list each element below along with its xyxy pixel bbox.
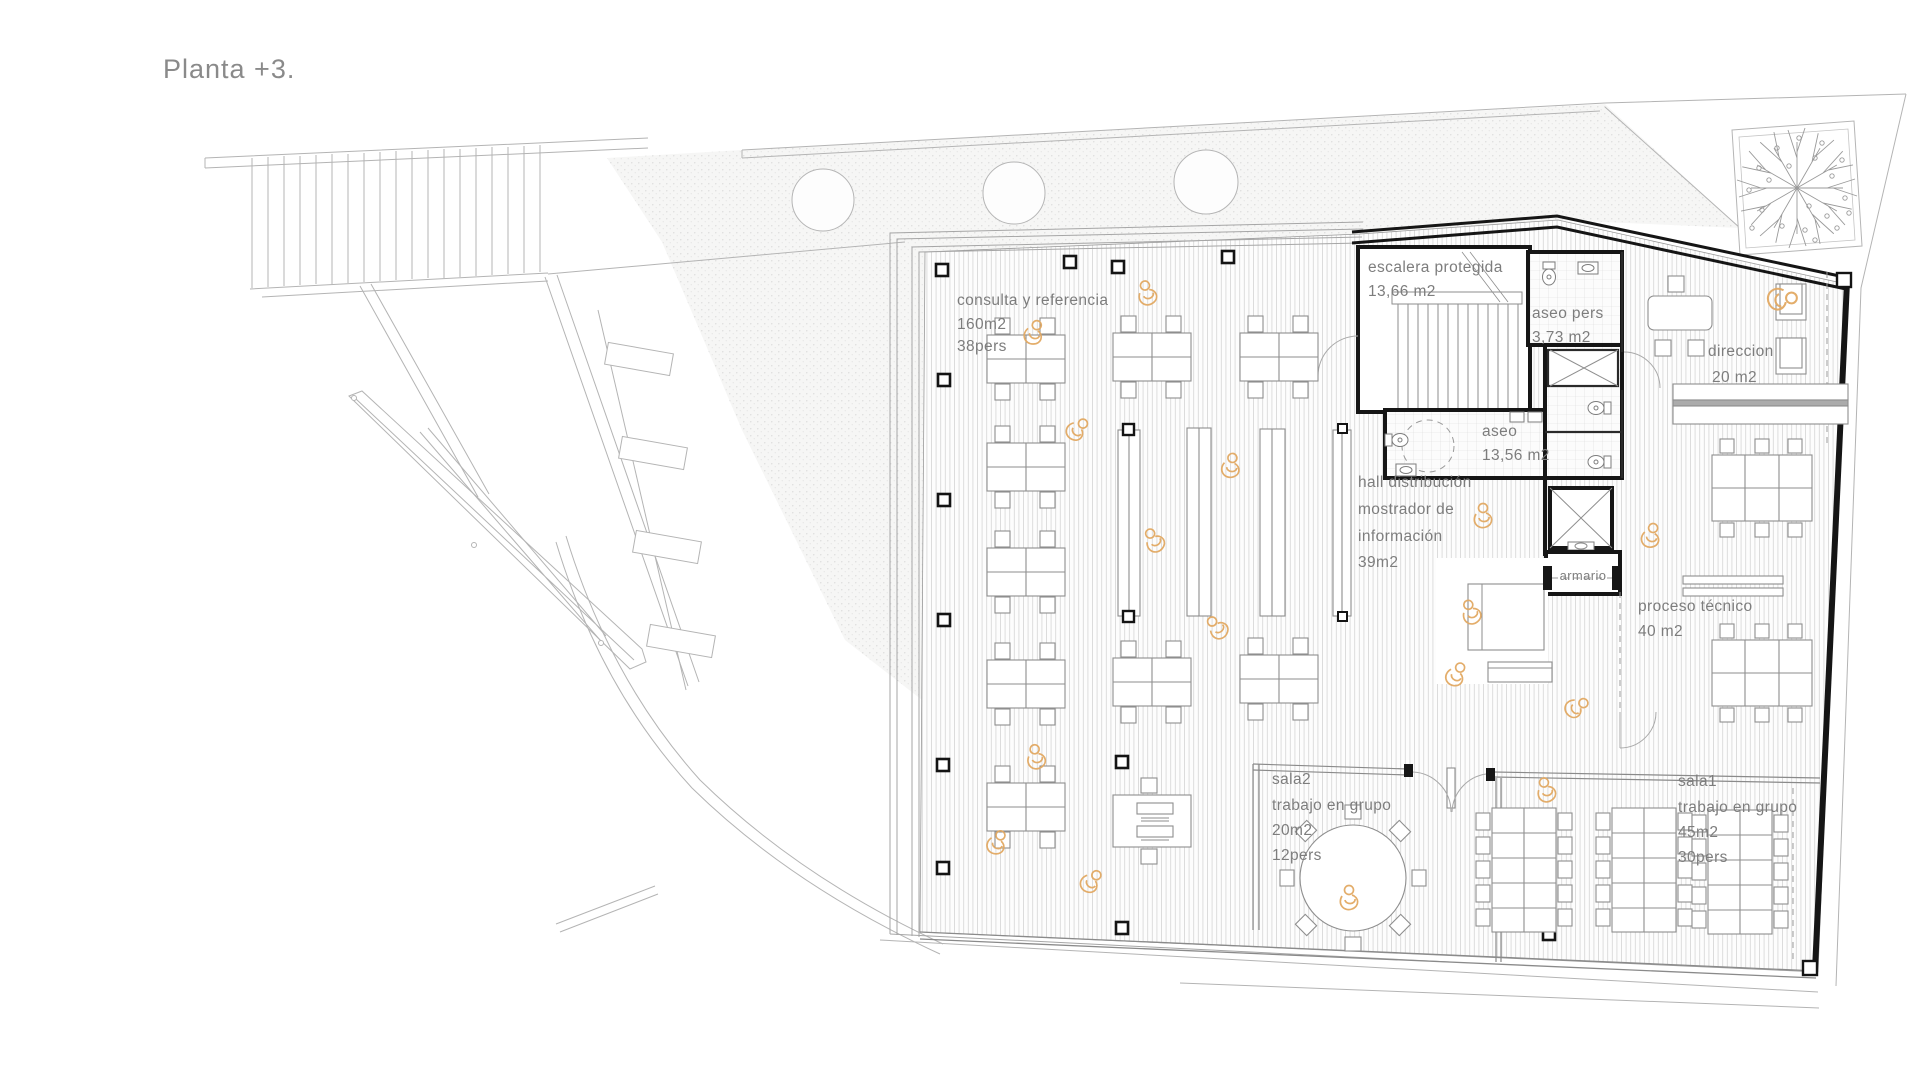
elevator-shaft	[1550, 488, 1612, 550]
label-consulta-capacity: 38pers	[957, 338, 1007, 355]
label-armario: armario	[1560, 568, 1607, 583]
skylight-circle	[983, 162, 1045, 224]
info-desk-zone	[1436, 558, 1552, 684]
label-sala2-type: trabajo en grupo	[1272, 797, 1391, 814]
label-hall-line3: información	[1358, 528, 1443, 545]
tree-planter	[1732, 121, 1862, 255]
east-wall-column	[1837, 273, 1851, 287]
label-direccion-area: 20 m2	[1712, 369, 1757, 386]
label-proceso-name: proceso técnico	[1638, 598, 1753, 615]
label-sala2-area: 20m2	[1272, 822, 1312, 839]
label-escalera-area: 13,66 m2	[1368, 283, 1436, 300]
label-sala2-name: sala2	[1272, 771, 1311, 788]
label-sala1-capacity: 30pers	[1678, 849, 1728, 866]
label-consulta-name: consulta y referencia	[957, 292, 1108, 309]
label-aseo-name: aseo	[1482, 423, 1517, 440]
label-sala2-capacity: 12pers	[1272, 847, 1322, 864]
label-consulta-area: 160m2	[957, 316, 1006, 333]
exterior-structure	[349, 275, 715, 690]
page-title: Planta +3.	[163, 54, 295, 84]
label-aseo-area: 13,56 m2	[1482, 447, 1550, 464]
label-hall-area: 39m2	[1358, 554, 1398, 571]
label-sala1-name: sala1	[1678, 773, 1717, 790]
skylight-circle	[792, 169, 854, 231]
floor-plan-canvas: Planta +3. consulta y referencia 160m2 3…	[0, 0, 1920, 1080]
label-aseo-pers-name: aseo pers	[1532, 305, 1604, 322]
sala1-furniture	[1476, 808, 1788, 934]
label-hall-line2: mostrador de	[1358, 501, 1454, 518]
label-sala1-type: trabajo en grupo	[1678, 799, 1797, 816]
label-sala1-area: 45m2	[1678, 824, 1718, 841]
skylight-circle	[1174, 150, 1238, 214]
floor-plan-page: Planta +3. consulta y referencia 160m2 3…	[0, 0, 1920, 1080]
label-direccion-name: direccion	[1708, 343, 1774, 360]
label-hall-name: hall distribución	[1358, 474, 1472, 491]
label-proceso-area: 40 m2	[1638, 623, 1683, 640]
label-escalera-name: escalera protegida	[1368, 259, 1503, 276]
east-wall-column	[1803, 961, 1817, 975]
label-aseo-pers-area: 3,73 m2	[1532, 329, 1591, 346]
